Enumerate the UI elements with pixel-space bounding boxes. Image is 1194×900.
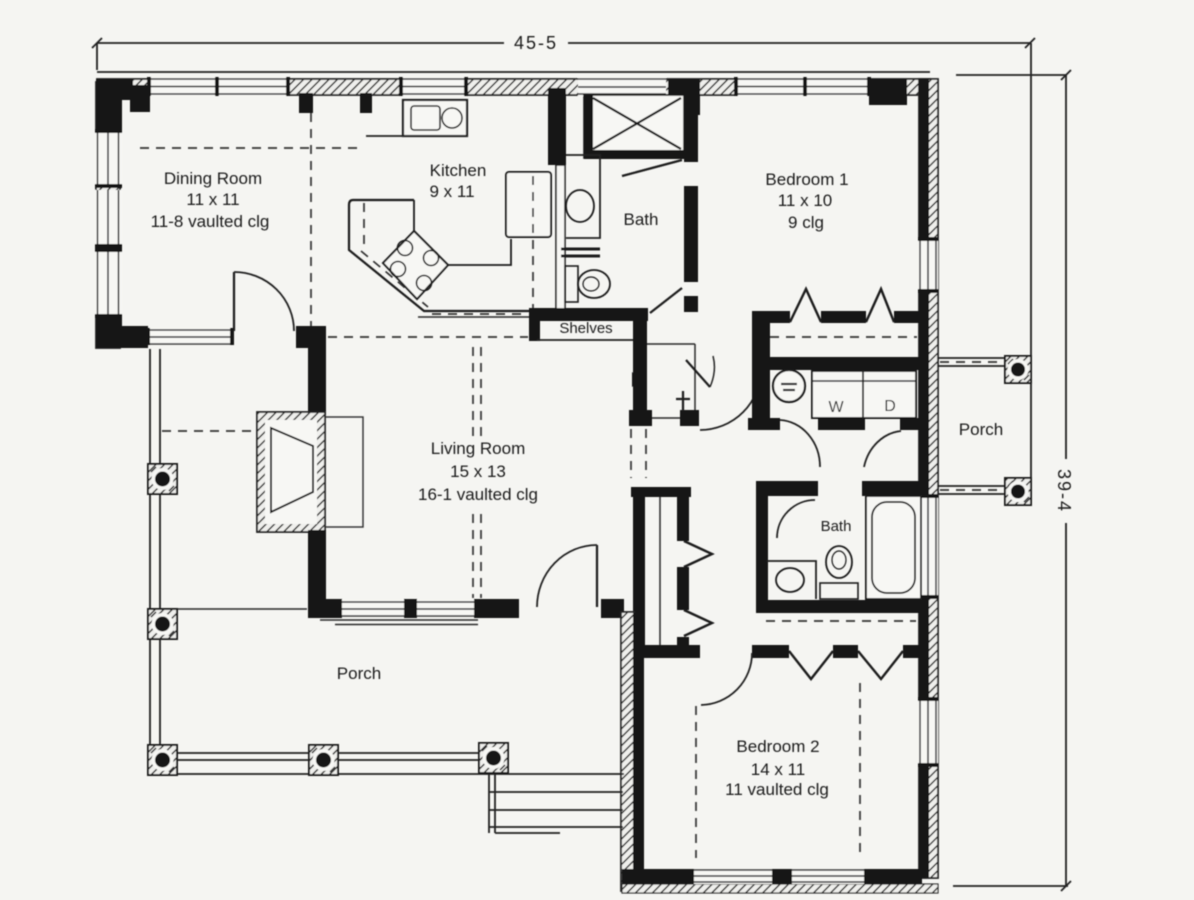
svg-text:D: D — [884, 398, 896, 415]
svg-text:11 x 11: 11 x 11 — [186, 190, 239, 209]
svg-text:Living Room: Living Room — [431, 439, 526, 458]
svg-text:Shelves: Shelves — [559, 320, 612, 337]
svg-text:Bath: Bath — [624, 210, 659, 229]
svg-text:14 x 11: 14 x 11 — [751, 760, 806, 779]
svg-text:Kitchen: Kitchen — [430, 161, 487, 180]
svg-text:9 clg: 9 clg — [788, 213, 824, 232]
svg-text:Porch: Porch — [959, 420, 1003, 439]
svg-text:9 x 11: 9 x 11 — [429, 182, 474, 201]
svg-text:45-5: 45-5 — [514, 33, 558, 53]
svg-text:Bedroom 2: Bedroom 2 — [736, 737, 819, 756]
svg-text:Porch: Porch — [337, 664, 381, 683]
svg-text:Dining Room: Dining Room — [164, 169, 262, 188]
svg-text:11 x 10: 11 x 10 — [778, 191, 833, 210]
svg-text:15 x 13: 15 x 13 — [450, 462, 506, 481]
svg-text:11-8 vaulted clg: 11-8 vaulted clg — [151, 212, 270, 231]
svg-text:Bath: Bath — [821, 518, 852, 535]
svg-text:16-1 vaulted clg: 16-1 vaulted clg — [418, 485, 538, 504]
svg-text:W: W — [828, 399, 844, 416]
svg-text:39-4: 39-4 — [1054, 469, 1074, 513]
svg-text:11 vaulted clg: 11 vaulted clg — [725, 780, 829, 799]
svg-text:Bedroom 1: Bedroom 1 — [765, 170, 848, 189]
